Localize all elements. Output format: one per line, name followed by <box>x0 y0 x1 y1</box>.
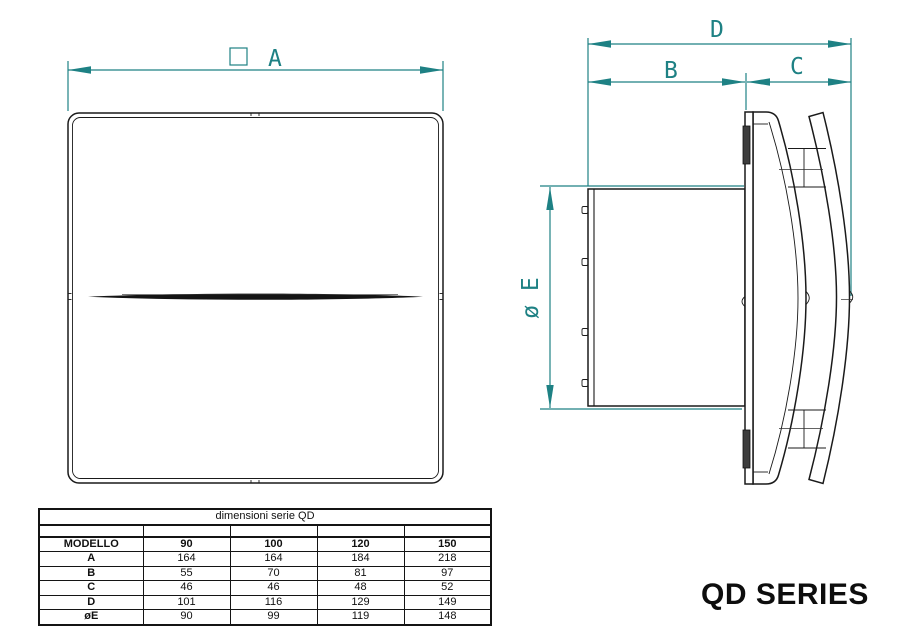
dim-a-label: A <box>268 46 282 72</box>
table-spacer-row <box>39 525 491 537</box>
value-cell: 52 <box>404 581 491 596</box>
table-title: dimensioni serie QD <box>39 509 491 525</box>
value-cell: 184 <box>317 552 404 567</box>
value-cell: 99 <box>230 610 317 625</box>
arrow-left-icon <box>588 78 611 85</box>
front-body <box>68 113 443 483</box>
value-cell: 46 <box>230 581 317 596</box>
arrow-left-icon <box>747 78 770 85</box>
model-cell: 120 <box>317 537 404 552</box>
value-cell: 48 <box>317 581 404 596</box>
value-cell: 70 <box>230 566 317 581</box>
clip-top <box>743 126 750 164</box>
value-cell: 119 <box>317 610 404 625</box>
value-cell: 148 <box>404 610 491 625</box>
series-title: QD SERIES <box>701 578 896 612</box>
value-cell: 81 <box>317 566 404 581</box>
model-header-cell: MODELLO <box>39 537 143 552</box>
model-cell: 100 <box>230 537 317 552</box>
table-title-row: dimensioni serie QD <box>39 509 491 525</box>
value-cell: 129 <box>317 595 404 610</box>
row-label-cell: D <box>39 595 143 610</box>
dimension-e: ø E <box>518 187 554 408</box>
row-label-cell: øE <box>39 610 143 625</box>
dim-b-label: B <box>664 58 678 84</box>
value-cell: 164 <box>143 552 230 567</box>
arrow-up-icon <box>546 187 553 210</box>
value-cell: 218 <box>404 552 491 567</box>
value-cell: 90 <box>143 610 230 625</box>
arrow-right-icon <box>828 40 851 47</box>
side-view: D B C ø E <box>518 17 853 484</box>
dimensions-table: dimensioni serie QD MODELLO 90 100 120 1… <box>38 508 492 626</box>
table-row: B 55 70 81 97 <box>39 566 491 581</box>
front-cover-panel <box>809 113 850 484</box>
value-cell: 97 <box>404 566 491 581</box>
table-header-row: MODELLO 90 100 120 150 <box>39 537 491 552</box>
table-row: A 164 164 184 218 <box>39 552 491 567</box>
clip-bottom <box>743 430 750 468</box>
arrow-right-icon <box>722 78 745 85</box>
table-row: D 101 116 129 149 <box>39 595 491 610</box>
drawing-svg: A <box>0 0 899 505</box>
dimension-a: A <box>68 46 443 111</box>
value-cell: 164 <box>230 552 317 567</box>
arrow-down-icon <box>546 385 553 408</box>
dimension-d: D <box>588 17 851 48</box>
front-view: A <box>68 46 443 483</box>
value-cell: 46 <box>143 581 230 596</box>
duct-ribs <box>582 207 588 387</box>
technical-drawing-page: A <box>0 0 899 638</box>
value-cell: 101 <box>143 595 230 610</box>
table-row: øE 90 99 119 148 <box>39 610 491 625</box>
row-label-cell: B <box>39 566 143 581</box>
dim-d-label: D <box>710 17 724 43</box>
dim-c-label: C <box>790 54 804 80</box>
arrow-left-icon <box>588 40 611 47</box>
model-cell: 90 <box>143 537 230 552</box>
dimension-c: C <box>747 54 851 86</box>
duct-tube <box>588 189 745 406</box>
dim-e-label: ø E <box>518 277 544 319</box>
side-body <box>582 112 853 484</box>
value-cell: 55 <box>143 566 230 581</box>
row-label-cell: C <box>39 581 143 596</box>
table-row: C 46 46 48 52 <box>39 581 491 596</box>
arrow-right-icon <box>828 78 851 85</box>
mounting-flange <box>745 112 753 484</box>
arrow-left-icon <box>68 66 91 73</box>
value-cell: 149 <box>404 595 491 610</box>
row-label-cell: A <box>39 552 143 567</box>
dimension-b: B <box>588 58 745 86</box>
square-symbol-icon <box>230 48 247 65</box>
value-cell: 116 <box>230 595 317 610</box>
model-cell: 150 <box>404 537 491 552</box>
arrow-right-icon <box>420 66 443 73</box>
